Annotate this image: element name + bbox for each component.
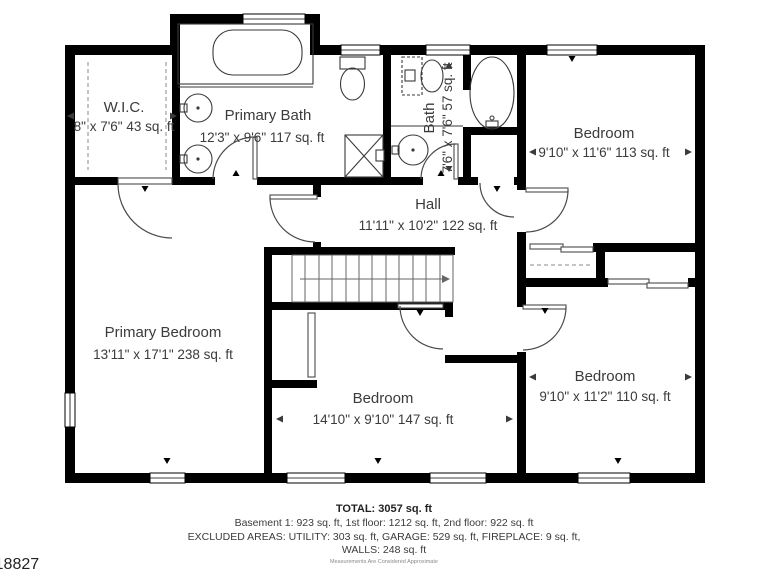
- door-bedroom-top-right: [526, 188, 568, 232]
- summary-excluded: EXCLUDED AREAS: UTILITY: 303 sq. ft, GAR…: [188, 531, 581, 543]
- door-closet-middle-bedroom: [308, 313, 315, 377]
- summary-total: TOTAL: 3057 sq. ft: [336, 503, 433, 515]
- summary-excluded-walls: WALLS: 248 sq. ft: [342, 544, 426, 556]
- room-dims-bedroom-middle: 14'10" x 9'10" 147 sq. ft: [313, 412, 454, 427]
- room-label-bedroom-middle: Bedroom: [353, 390, 414, 407]
- room-label-bedroom-bottom-right: Bedroom: [575, 368, 636, 385]
- room-dims-bedroom-top-right: 9'10" x 11'6" 113 sq. ft: [538, 145, 670, 160]
- sliding-door-closet-bottom: [608, 279, 688, 288]
- window-icon: [426, 45, 470, 55]
- bathtub-icon: [470, 57, 514, 129]
- summary-disclaimer: Measurements Are Considered Approximate: [330, 559, 438, 565]
- listing-id: 5418827: [0, 556, 39, 573]
- floor-plan-page: W.I.C. 8" x 7'6" 43 sq. ft Primary Bath …: [0, 0, 768, 576]
- shower-icon: [345, 135, 384, 177]
- window-icon: [243, 14, 305, 24]
- room-dims-wic: 8" x 7'6" 43 sq. ft: [74, 119, 175, 134]
- room-dims-primary-bedroom: 13'11" x 17'1" 238 sq. ft: [93, 347, 233, 362]
- bathtub-icon: [178, 24, 313, 87]
- room-dims-bath: 7'6" x 7'6" 57 sq. ft: [440, 62, 455, 173]
- summary-floors: Basement 1: 923 sq. ft, 1st floor: 1212 …: [235, 517, 534, 529]
- room-dims-hall: 11'11" x 10'2" 122 sq. ft: [359, 218, 498, 233]
- toilet-icon: [402, 57, 443, 95]
- room-label-hall: Hall: [415, 196, 441, 213]
- room-labels: W.I.C. 8" x 7'6" 43 sq. ft Primary Bath …: [74, 62, 671, 427]
- door-primary-bedroom: [270, 195, 317, 242]
- window-icon: [341, 45, 380, 55]
- room-label-wic: W.I.C.: [104, 99, 145, 116]
- room-dims-primary-bath: 12'3" x 9'6" 117 sq. ft: [200, 130, 325, 145]
- room-label-bedroom-top-right: Bedroom: [574, 125, 635, 142]
- window-icon: [578, 473, 630, 483]
- interior-walls: [75, 55, 695, 473]
- room-label-primary-bedroom: Primary Bedroom: [105, 324, 222, 341]
- room-label-primary-bath: Primary Bath: [225, 107, 312, 124]
- window-icon: [150, 473, 185, 483]
- window-icon: [547, 45, 597, 55]
- room-label-bath: Bath: [421, 103, 438, 134]
- toilet-icon: [340, 57, 365, 100]
- floor-plan-drawing: W.I.C. 8" x 7'6" 43 sq. ft Primary Bath …: [0, 0, 768, 576]
- window-icon: [430, 473, 486, 483]
- window-icon: [287, 473, 345, 483]
- window-icon: [65, 393, 75, 427]
- summary-block: TOTAL: 3057 sq. ft Basement 1: 923 sq. f…: [188, 503, 581, 565]
- stair-direction-arrow-icon: [300, 275, 450, 283]
- staircase: [292, 255, 453, 302]
- room-dims-bedroom-bottom-right: 9'10" x 11'2" 110 sq. ft: [539, 389, 671, 404]
- sliding-door-closet-top: [530, 244, 593, 252]
